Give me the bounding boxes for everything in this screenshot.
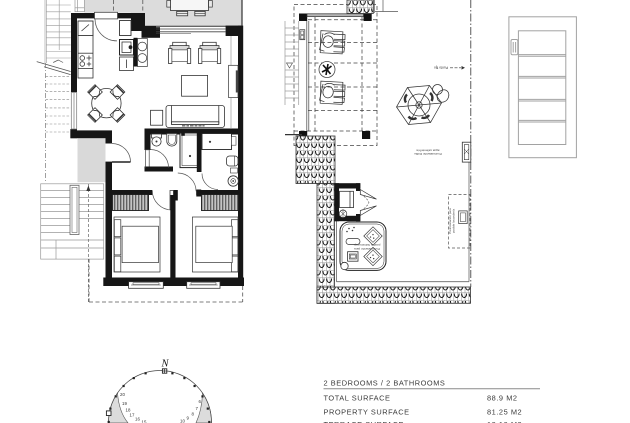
svg-text:posible hidromasaje: posible hidromasaje — [353, 243, 380, 247]
svg-text:Punto fijo: Punto fijo — [434, 66, 448, 70]
svg-text:81.25 M2: 81.25 M2 — [487, 408, 522, 417]
svg-text:15: 15 — [142, 420, 147, 423]
svg-text:16: 16 — [135, 417, 140, 422]
svg-text:N: N — [160, 359, 169, 370]
svg-text:10: 10 — [180, 419, 185, 423]
svg-text:TOTAL SURFACE: TOTAL SURFACE — [324, 394, 391, 403]
svg-text:19: 19 — [122, 401, 127, 406]
svg-text:88.9 M2: 88.9 M2 — [487, 394, 518, 403]
svg-text:agua caliente/fría: agua caliente/fría — [416, 148, 439, 152]
svg-text:20: 20 — [120, 392, 125, 397]
svg-text:posible lavandería: posible lavandería — [452, 208, 456, 233]
svg-text:PROPERTY SURFACE: PROPERTY SURFACE — [324, 408, 410, 417]
svg-text:2 BEDROOMS / 2 BATHROOMS: 2 BEDROOMS / 2 BATHROOMS — [324, 379, 446, 388]
